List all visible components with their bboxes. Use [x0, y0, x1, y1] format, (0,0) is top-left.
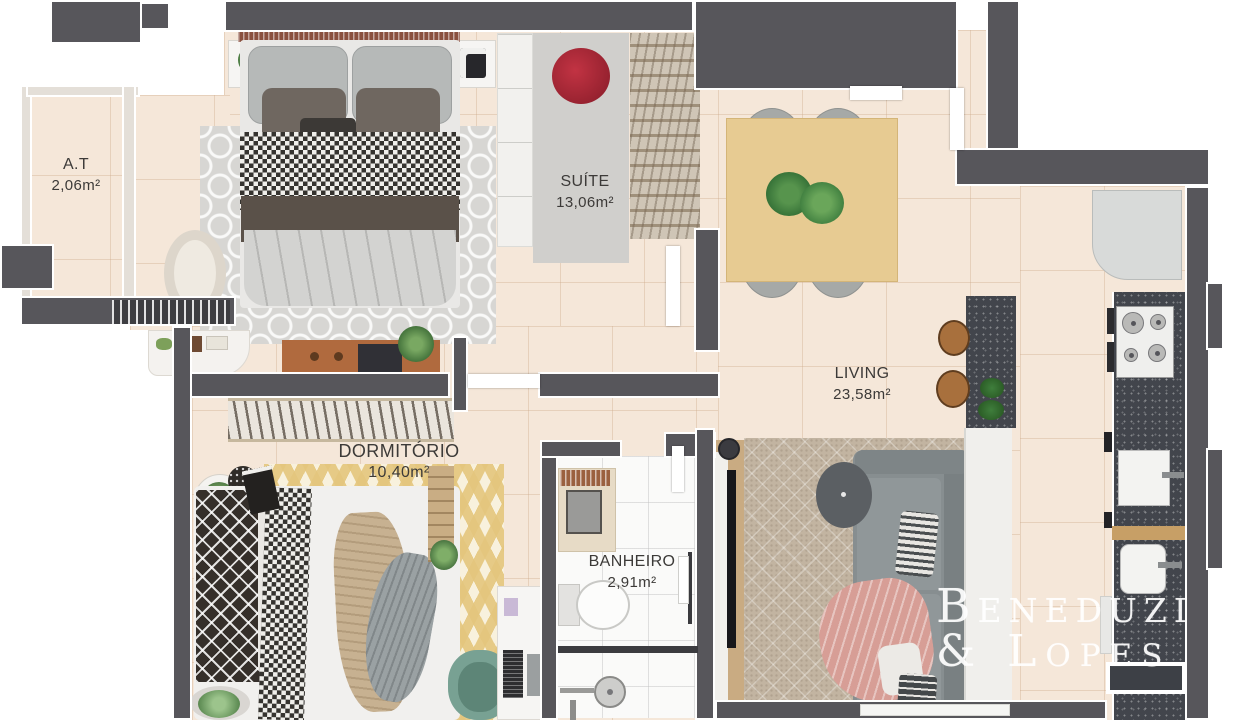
apartment-floor-plan: A.T 2,06m² SUÍTE 13,06m² DORMITÓRIO 10,4…: [0, 0, 1240, 720]
table-center: [841, 492, 846, 497]
cabinet-handle: [1104, 432, 1112, 452]
table-plant: [800, 182, 844, 224]
suite-door: [666, 246, 680, 326]
shower-glass-partition: [558, 646, 698, 653]
burner: [1122, 312, 1144, 334]
wall-pillar: [1206, 448, 1224, 570]
book: [206, 336, 228, 350]
fruit-bowl: [156, 338, 172, 350]
kitchen-sink: [1118, 450, 1170, 506]
room-name: DORMITÓRIO: [339, 440, 460, 463]
room-name: LIVING: [835, 364, 890, 385]
room-name: A.T: [63, 155, 89, 176]
speaker: [718, 438, 740, 460]
houndstooth-runner: [258, 487, 312, 720]
faucet: [1158, 562, 1182, 568]
wall-bathroom: [540, 440, 622, 458]
room-area: 10,40m²: [368, 463, 430, 484]
wall-bathroom: [695, 428, 715, 720]
room-name: SUÍTE: [560, 172, 609, 193]
room-area: 2,91m²: [607, 573, 656, 593]
knob: [334, 352, 343, 361]
striped-pillow: [895, 510, 939, 578]
desk-accessory: [504, 598, 518, 616]
plant-island: [980, 378, 1004, 398]
wall-bathroom: [540, 440, 558, 720]
wall-pillar: [0, 244, 54, 290]
wall: [955, 148, 1210, 186]
wall: [140, 2, 170, 30]
room-name: BANHEIRO: [589, 552, 676, 573]
wall: [50, 0, 142, 44]
room-area: 23,58m²: [833, 385, 891, 405]
wall-pillar: [1206, 282, 1224, 350]
watermark-line1: Beneduzi: [936, 584, 1236, 630]
tv-screen: [727, 470, 736, 648]
bathroom-sink: [566, 490, 602, 534]
faucet: [1162, 472, 1184, 478]
duvet: [244, 230, 456, 306]
suite-closet-shelves: [630, 33, 700, 239]
wall-dorm-left: [172, 326, 192, 720]
burner: [1124, 348, 1138, 362]
room-label-at: A.T 2,06m²: [26, 155, 126, 195]
wall-suite-dorm: [190, 372, 450, 398]
cabinet-handle: [1104, 512, 1112, 528]
balcony-door: [950, 88, 964, 150]
keyboard: [503, 650, 523, 698]
suite-wardrobe: [497, 33, 533, 247]
counter-wood-section: [1112, 526, 1185, 540]
grille-railing: [112, 300, 230, 324]
plant-island: [978, 400, 1004, 420]
bar-stool: [936, 370, 970, 408]
threshold: [860, 704, 1010, 716]
tv-console: [714, 452, 728, 706]
wall-stub: [452, 336, 468, 412]
red-pouf: [552, 48, 610, 104]
wall: [986, 0, 1020, 150]
geometric-pillows: [196, 490, 264, 682]
bath-mat: [560, 470, 610, 486]
sofa-armrest: [855, 450, 969, 474]
dorm-door: [468, 374, 540, 388]
drain-center: [607, 689, 613, 695]
oven-handle: [1107, 342, 1114, 372]
room-label-suite: SUÍTE 13,06m²: [537, 172, 633, 212]
room-area: 13,06m²: [556, 193, 614, 213]
teal-chair-seat: [458, 662, 502, 712]
plant-dresser: [398, 326, 434, 362]
oven-handle: [1107, 308, 1114, 334]
wall-at-divider: [122, 85, 136, 311]
watermark-line2: & Lopes: [936, 630, 1236, 673]
brand-watermark: Beneduzi & Lopes: [936, 584, 1236, 673]
burner: [1150, 314, 1166, 330]
room-label-banheiro: BANHEIRO 2,91m²: [572, 552, 692, 592]
tv-on-dresser: [358, 344, 402, 372]
burner: [1148, 344, 1166, 362]
knob: [310, 352, 319, 361]
lamp-clock: [460, 48, 486, 78]
laptop: [527, 654, 541, 696]
room-label-living: LIVING 23,58m²: [806, 364, 918, 404]
floor-plant: [198, 690, 240, 718]
shower-wand: [570, 700, 576, 720]
wall-corridor: [694, 228, 720, 352]
bar-stool: [938, 320, 970, 356]
wall-top: [224, 0, 694, 32]
entry-door: [850, 86, 902, 100]
plant-shelf: [430, 540, 458, 570]
dorm-closet-hangers: [228, 398, 454, 442]
wall-entry-block: [694, 0, 958, 90]
shower-pipe: [560, 688, 594, 693]
room-area: 2,06m²: [51, 176, 100, 196]
wall-suite-dorm: [538, 372, 720, 398]
fridge: [1092, 190, 1182, 280]
bathroom-door: [672, 446, 684, 492]
room-label-dormitorio: DORMITÓRIO 10,40m²: [326, 440, 472, 484]
